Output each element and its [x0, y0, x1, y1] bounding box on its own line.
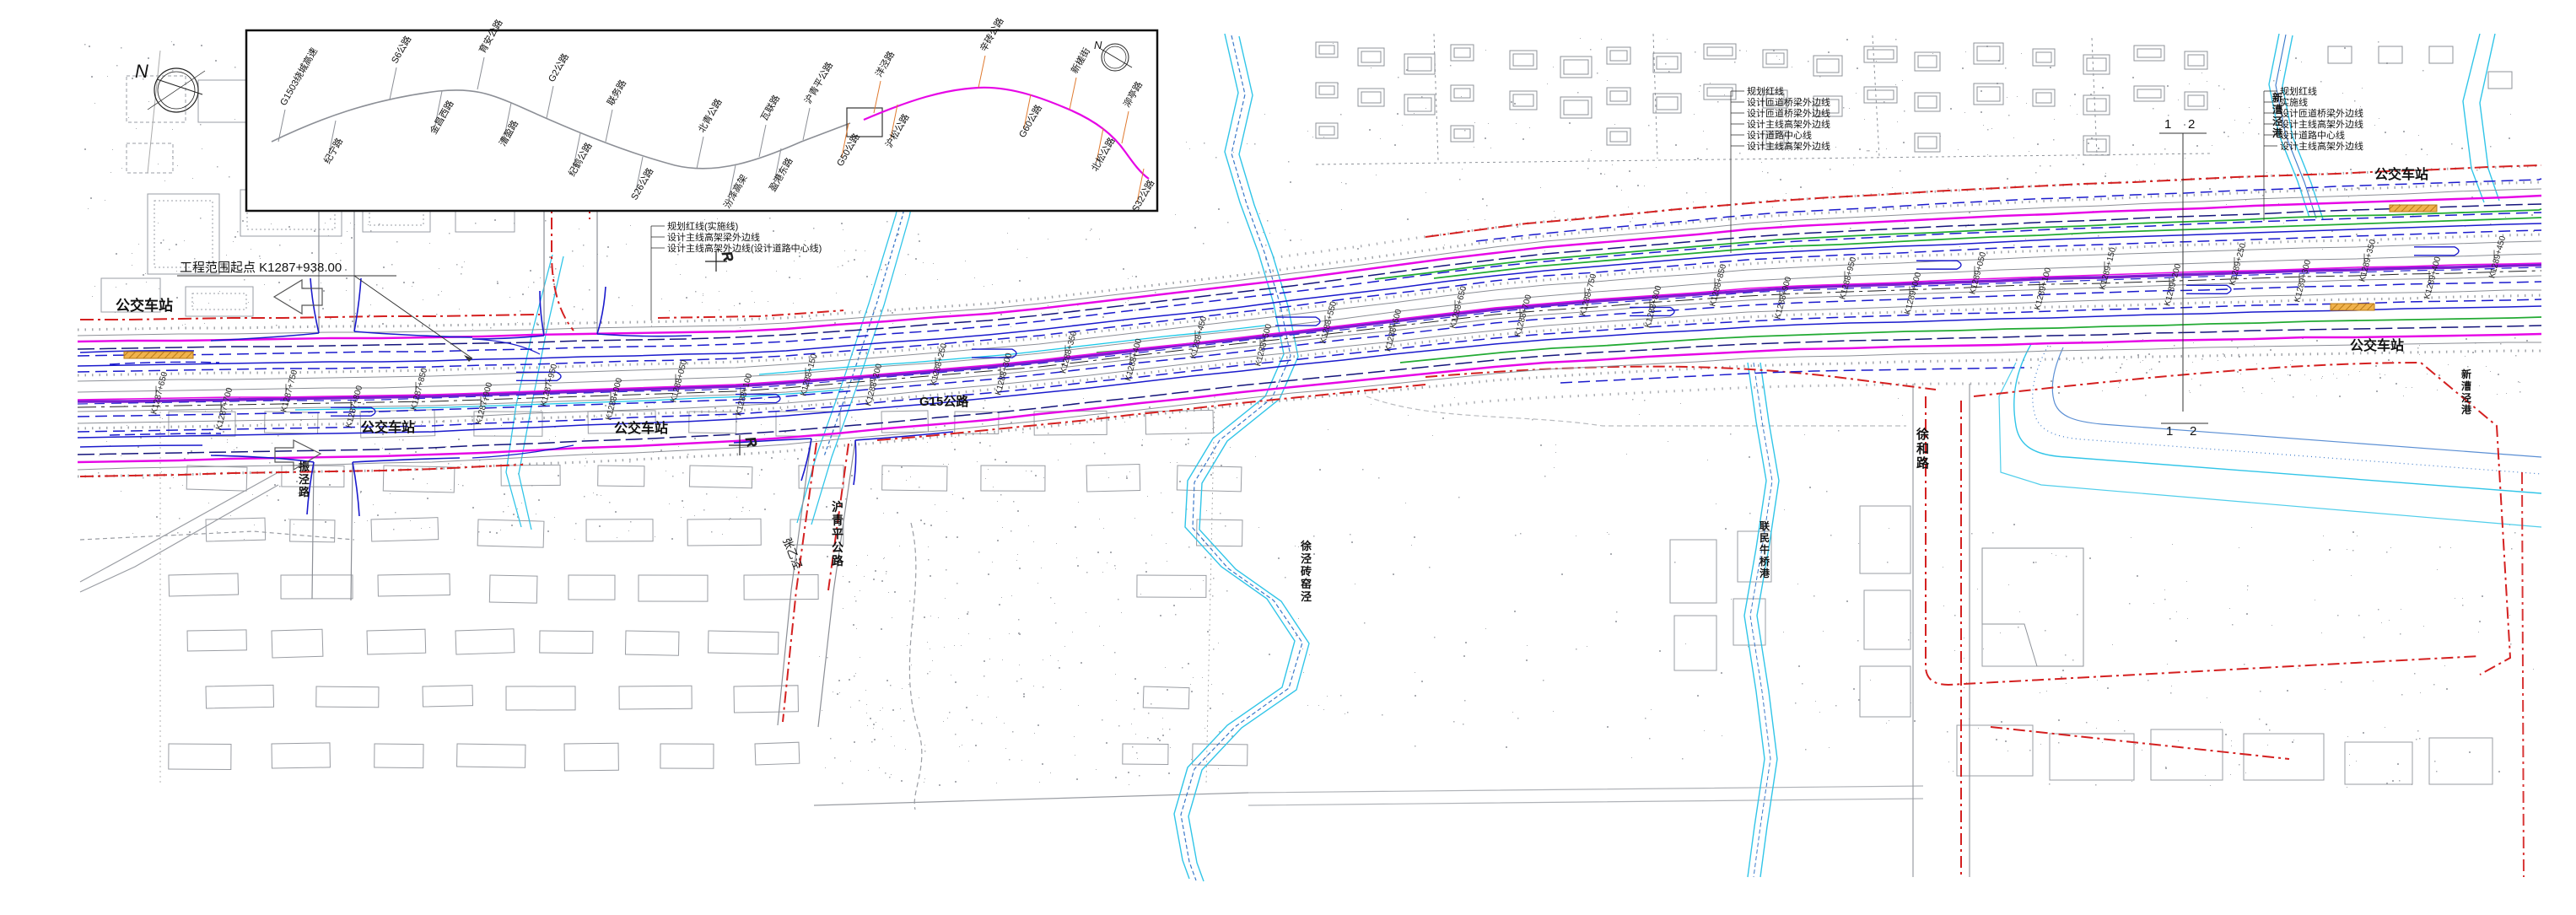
- svg-text:1: 1: [2164, 117, 2171, 132]
- svg-text:公交车站: 公交车站: [2350, 337, 2404, 353]
- svg-text:联民牛桥港: 联民牛桥港: [1760, 520, 1770, 579]
- svg-text:设计主线高架外边线: 设计主线高架外边线: [1747, 140, 1830, 152]
- svg-text:设计匝道桥梁外边线: 设计匝道桥梁外边线: [1747, 96, 1830, 108]
- svg-text:设计主线高架外边线: 设计主线高架外边线: [2280, 118, 2363, 130]
- svg-text:新漕泾港: 新漕泾港: [2461, 368, 2472, 416]
- svg-text:设计匝道桥梁外边线: 设计匝道桥梁外边线: [2280, 107, 2363, 119]
- svg-text:设计道路中心线: 设计道路中心线: [1747, 129, 1812, 141]
- svg-text:规划红线: 规划红线: [2280, 85, 2317, 97]
- svg-text:徐泾砖窑泾: 徐泾砖窑泾: [1300, 540, 1312, 603]
- svg-text:N: N: [1094, 39, 1102, 51]
- svg-text:设计主线高架梁外边线: 设计主线高架梁外边线: [667, 231, 760, 243]
- svg-text:2: 2: [2188, 117, 2195, 132]
- svg-text:设计道路中心线: 设计道路中心线: [2280, 129, 2345, 141]
- svg-text:1: 1: [2166, 424, 2173, 439]
- svg-text:公交车站: 公交车站: [2374, 166, 2428, 182]
- svg-text:设计匝道桥梁外边线: 设计匝道桥梁外边线: [1747, 107, 1830, 119]
- svg-text:公交车站: 公交车站: [116, 297, 173, 314]
- svg-text:G15公路: G15公路: [919, 394, 969, 409]
- svg-text:规划红线(实施线): 规划红线(实施线): [667, 220, 738, 232]
- svg-text:公交车站: 公交车站: [361, 419, 415, 435]
- svg-text:规划红线: 规划红线: [1747, 85, 1784, 97]
- svg-text:设计主线高架外边线: 设计主线高架外边线: [2280, 140, 2363, 152]
- svg-text:沪青平公路: 沪青平公路: [832, 500, 844, 568]
- svg-text:N: N: [135, 61, 148, 82]
- svg-text:设计主线高架外边线(设计道路中心线): 设计主线高架外边线(设计道路中心线): [667, 242, 822, 254]
- svg-text:公交车站: 公交车站: [614, 420, 668, 436]
- svg-text:设计主线高架外边线: 设计主线高架外边线: [1747, 118, 1830, 130]
- svg-text:徐和路: 徐和路: [1916, 427, 1930, 471]
- svg-text:实施线: 实施线: [2280, 96, 2308, 108]
- svg-text:工程范围起点 K1287+938.00: 工程范围起点 K1287+938.00: [180, 261, 342, 275]
- svg-text:2: 2: [2190, 424, 2196, 439]
